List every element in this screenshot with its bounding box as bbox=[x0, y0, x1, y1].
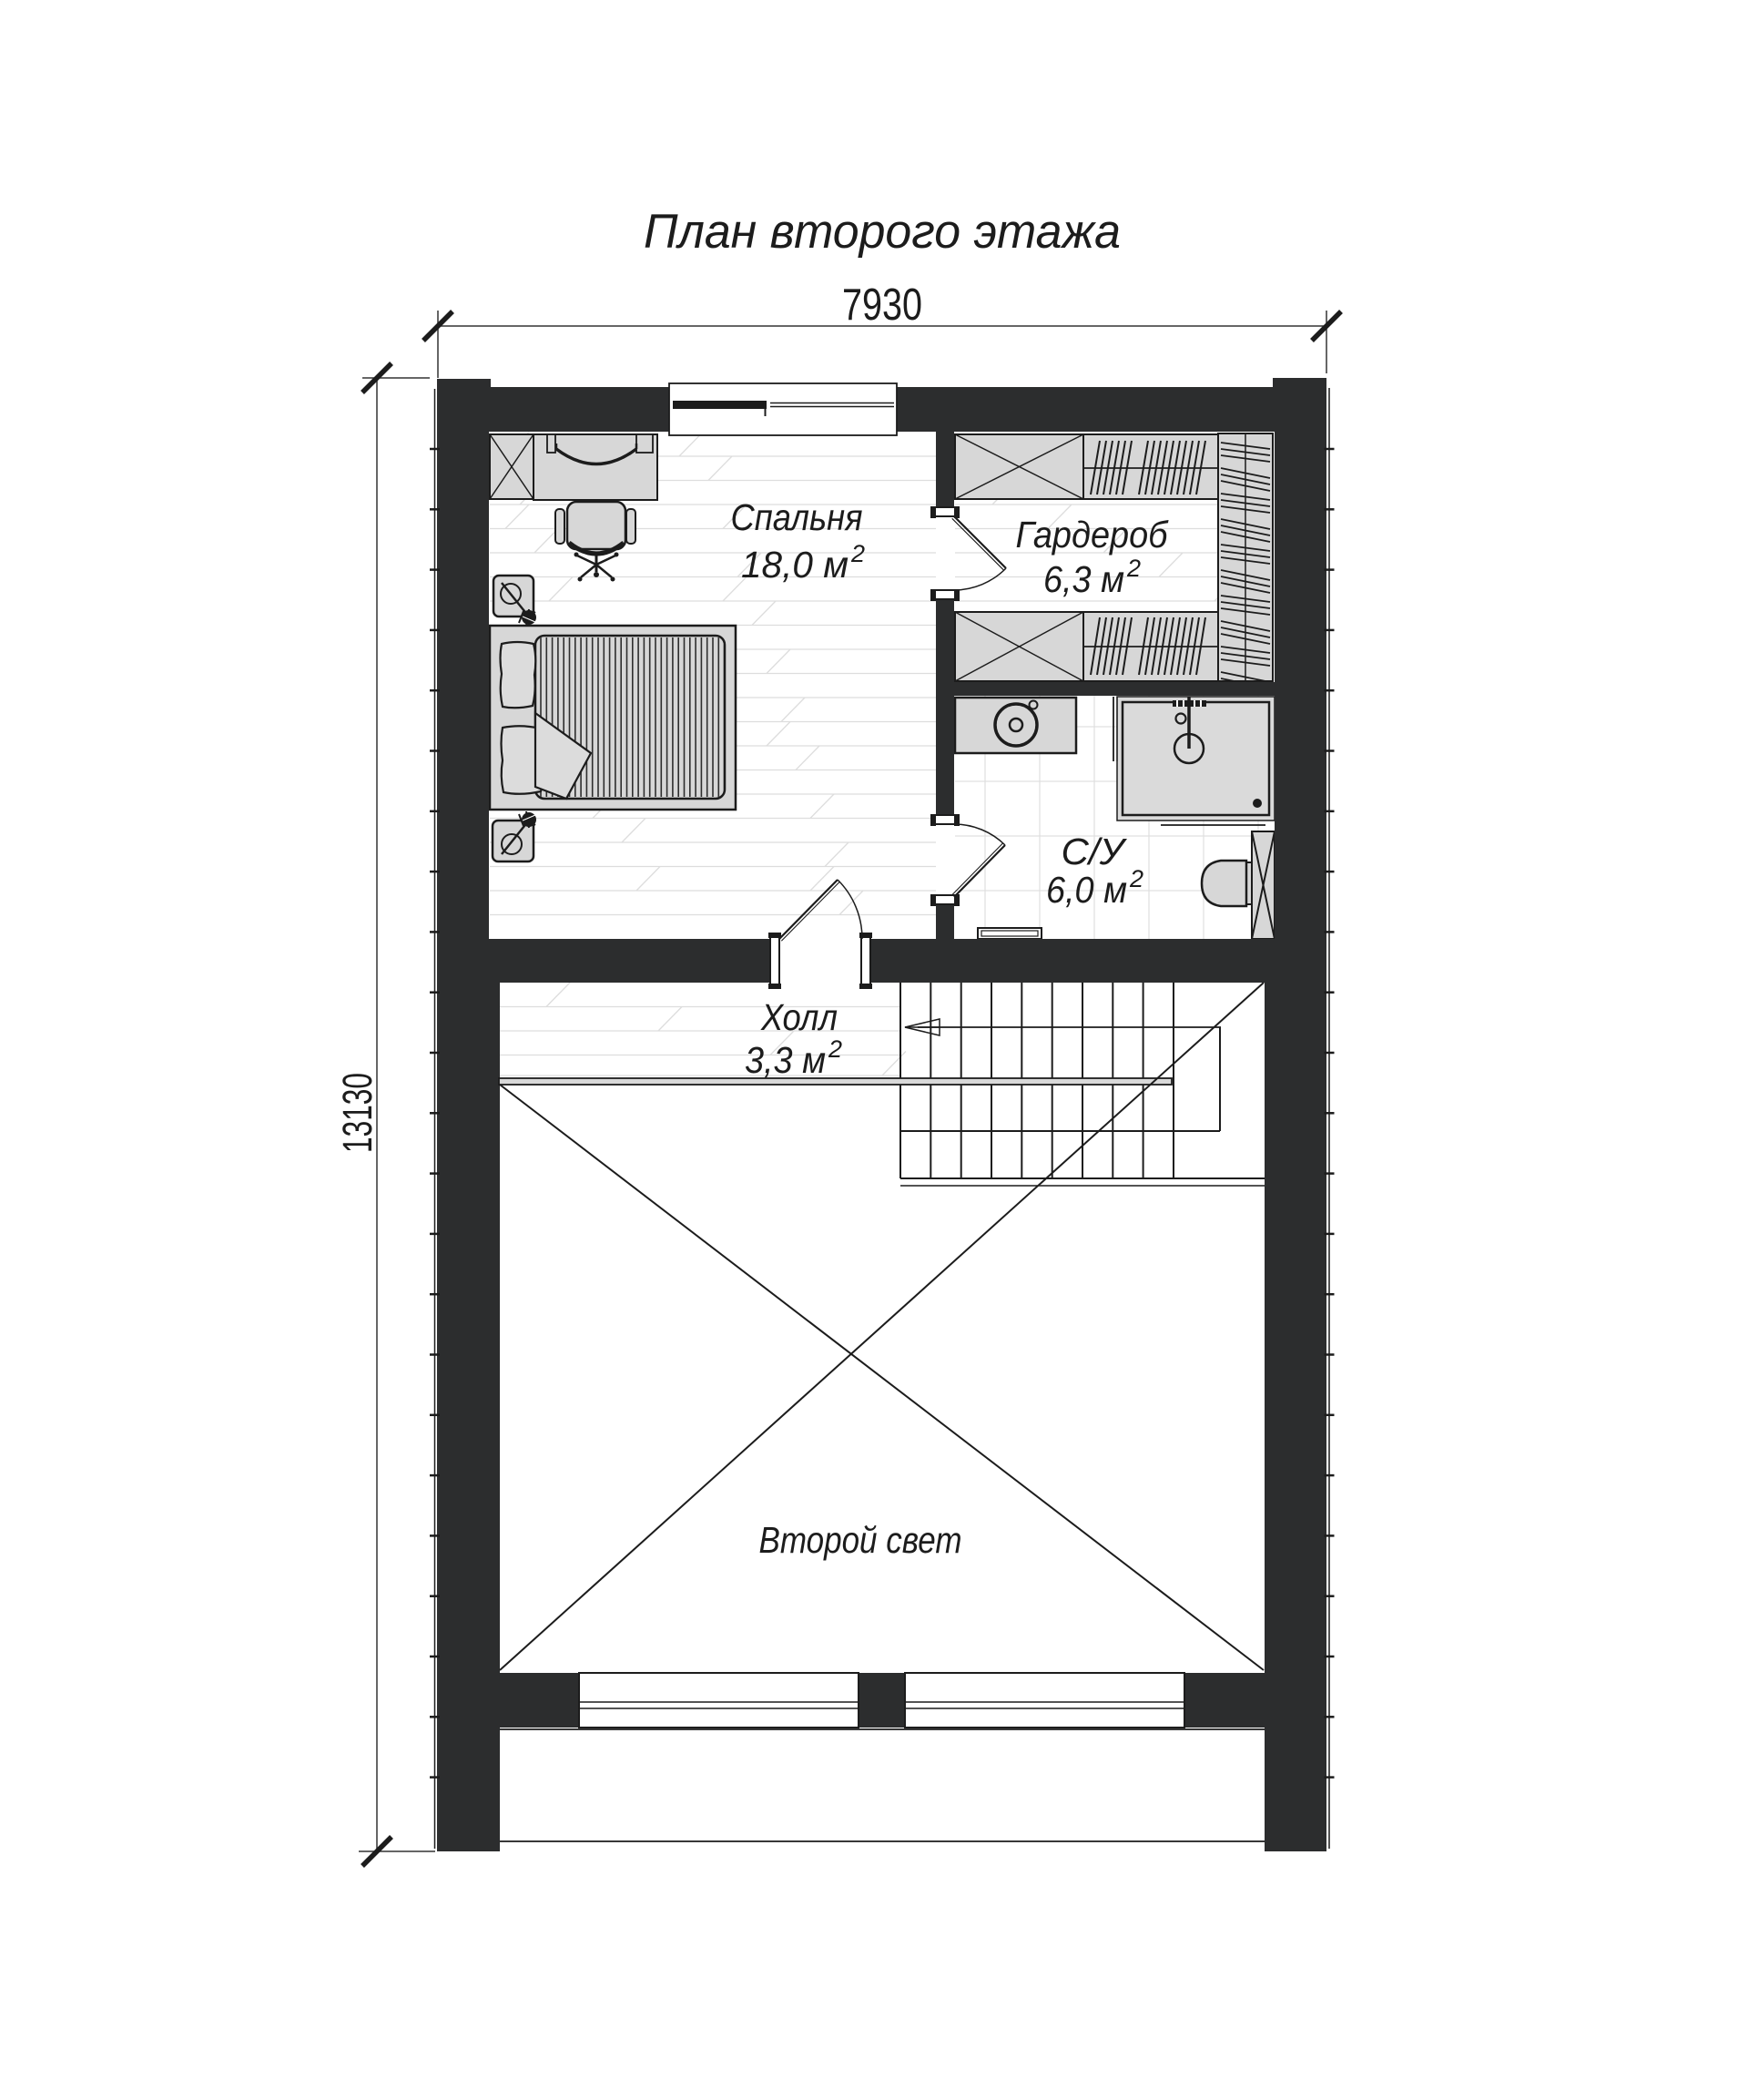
svg-text:План второго этажа: План второго этажа bbox=[644, 205, 1121, 259]
svg-text:2: 2 bbox=[1126, 555, 1141, 582]
svg-text:2: 2 bbox=[1129, 865, 1143, 892]
svg-text:3,3 м: 3,3 м bbox=[745, 1039, 826, 1081]
svg-text:Второй свет: Второй свет bbox=[759, 1519, 962, 1561]
svg-text:Холл: Холл bbox=[760, 996, 838, 1038]
svg-text:С/У: С/У bbox=[1062, 831, 1128, 872]
svg-text:2: 2 bbox=[850, 540, 865, 567]
svg-text:Спальня: Спальня bbox=[731, 496, 863, 538]
svg-text:2: 2 bbox=[828, 1035, 842, 1063]
svg-text:Гардероб: Гардероб bbox=[1016, 514, 1170, 556]
svg-text:6,0 м: 6,0 м bbox=[1046, 869, 1127, 911]
svg-text:13130: 13130 bbox=[334, 1073, 381, 1153]
svg-text:7930: 7930 bbox=[842, 280, 922, 330]
svg-text:18,0 м: 18,0 м bbox=[741, 544, 849, 586]
svg-text:6,3 м: 6,3 м bbox=[1043, 558, 1124, 600]
